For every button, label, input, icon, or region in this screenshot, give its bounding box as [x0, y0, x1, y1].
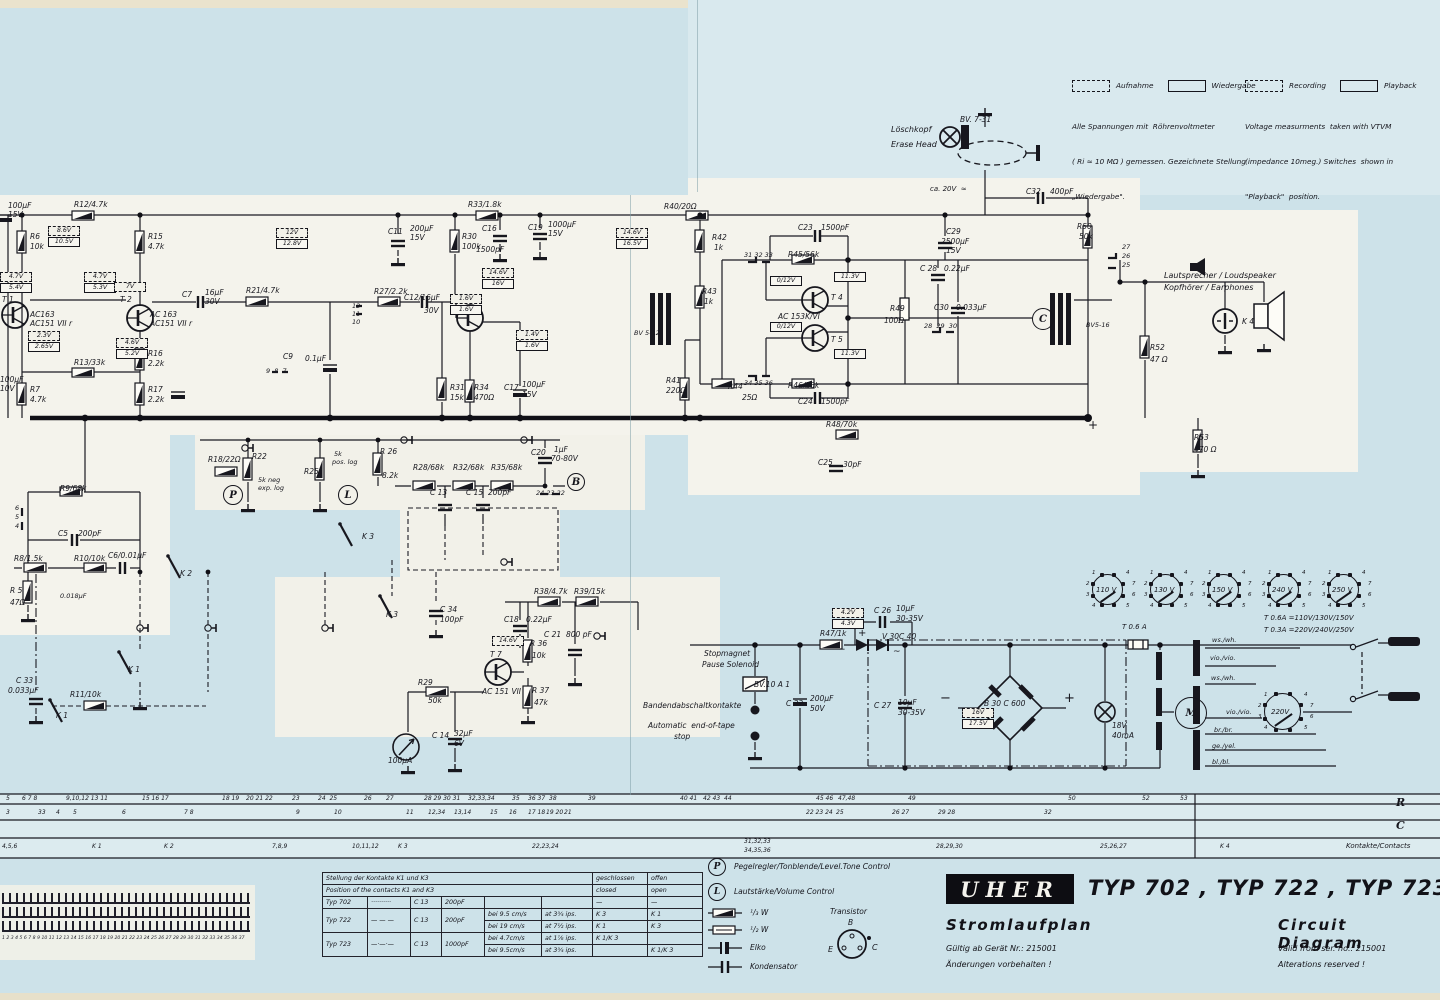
- schematic-label: R35/68k: [491, 464, 522, 472]
- col-closed: closed: [593, 885, 648, 897]
- voltage-recording: 4.7V: [0, 272, 32, 282]
- voltage-box: 11.3V: [834, 272, 866, 282]
- schematic-label: R8/1.5k: [14, 555, 43, 563]
- schematic-label: C23: [798, 224, 813, 232]
- schematic-label: R53: [1194, 434, 1209, 442]
- selector-bump: [1149, 582, 1153, 586]
- schematic-label: 47k: [534, 699, 548, 707]
- voltage-selector: 250 V12344765: [1302, 560, 1386, 620]
- strip-label-c: C: [1396, 819, 1405, 832]
- strip-row-r-item: 9,10,12 13 11: [66, 796, 108, 802]
- schematic-label: R 5: [10, 587, 22, 595]
- strip-row-c-item: 21: [564, 810, 572, 816]
- l-control-icon: L: [708, 883, 726, 901]
- strip-row-r-item: 5: [6, 796, 10, 802]
- schematic-label: K 3: [386, 611, 398, 619]
- circle-mark-m: M: [1175, 697, 1207, 729]
- cell-closed: K 1: [593, 921, 648, 933]
- valid-de: Gültig ab Gerät Nr.: 215001: [946, 944, 1057, 953]
- schematic-label: R48/70k: [826, 421, 857, 429]
- cell-cap: C 13: [411, 897, 442, 909]
- strip-row-c-item: 3: [6, 810, 10, 816]
- schematic-label: R15: [148, 233, 163, 241]
- strip-row-r-item: 49: [908, 796, 916, 802]
- selector-bump: [1348, 603, 1352, 607]
- strip-row-r-item: 24 25: [318, 796, 337, 802]
- col-open: open: [648, 885, 703, 897]
- fuse-note-2: T 0.3A =220V/240V/250V: [1264, 627, 1354, 635]
- schematic-scan-page: Aufnahme Wiedergabe Alle Spannungen mit …: [0, 0, 1440, 1000]
- schematic-label: 200pF: [78, 530, 101, 538]
- strip-row-k-item: 28,29,30: [936, 844, 963, 850]
- cell-value: 200pF: [442, 897, 485, 909]
- l-control-label: Lautstärke/Volume Control: [734, 888, 834, 896]
- selector-bump: [1267, 594, 1271, 598]
- schematic-label: +: [1064, 692, 1075, 706]
- selector-bump: [1149, 594, 1153, 598]
- schematic-label: C19: [528, 224, 543, 232]
- transistor-t1: [2, 302, 28, 328]
- schematic-label: 10k: [30, 243, 44, 251]
- selector-pin: 6: [1310, 715, 1314, 721]
- schematic-label: R41: [666, 377, 681, 385]
- svg-text:E: E: [828, 945, 834, 954]
- transistor-pinout-icon: E C: [822, 926, 882, 966]
- cell-speed-de: bei 9.5cm/s: [485, 945, 542, 957]
- cell-speed-en: at 3¾ ips.: [542, 945, 593, 957]
- selector-bump: [1091, 582, 1095, 586]
- half-watt-label: ¹/₂ W: [750, 926, 768, 934]
- schematic-label: R12/4.7k: [74, 201, 108, 209]
- schematic-label: 9 8 7: [266, 368, 287, 375]
- schematic-label: R7: [30, 386, 40, 394]
- voltage-recording: 8.6V: [48, 226, 80, 236]
- strip-row-c-item: 32: [1044, 810, 1052, 816]
- cell-speed-en: at 1⅞ ips.: [542, 933, 593, 945]
- schematic-label: 31 32 33: [744, 252, 773, 259]
- schematic-label: AC163: [30, 311, 55, 319]
- cell-linestyle: ··········: [368, 897, 411, 909]
- schematic-label: bl./bl.: [1212, 759, 1230, 766]
- selector-bump: [1348, 573, 1352, 577]
- cell-model: Typ 702: [323, 897, 368, 909]
- title-block: UHER TYP 702 , TYP 722 , TYP 723 Stromla…: [938, 868, 1438, 986]
- voltage-playback: 2.65V: [28, 342, 60, 352]
- schematic-label: C 13: [430, 489, 447, 497]
- strip-row-r-item: 23: [292, 796, 300, 802]
- resistor-third-watt-icon: [708, 908, 742, 918]
- voltage-recording: 2.3V: [28, 331, 60, 341]
- schematic-label: AC 151 VII: [482, 688, 521, 696]
- voltage-recording: 16V: [962, 708, 994, 718]
- voltage-playback: 12.8V: [276, 239, 308, 249]
- strip-row-c-item: 6: [122, 810, 126, 816]
- schematic-label: 100µF: [522, 381, 545, 389]
- voltage-box: 4.6V5.2V: [116, 338, 148, 359]
- schematic-label: 30-35V: [898, 709, 925, 717]
- selector-pin: 5: [1304, 726, 1308, 732]
- schematic-label: 0.22µF: [526, 616, 552, 624]
- speaker-symbol: [1254, 292, 1284, 340]
- schematic-label: 10: [352, 319, 360, 326]
- strip-row-c-item: 29 28: [938, 810, 955, 816]
- schematic-label: 30V: [205, 298, 220, 306]
- schematic-label: R44: [728, 383, 743, 391]
- strip-row-k-item: 7,8,9: [272, 844, 287, 850]
- schematic-label: C 15: [466, 489, 483, 497]
- schematic-label: 0.22µF: [944, 265, 970, 273]
- switch-k3b: [338, 522, 352, 546]
- schematic-label: C 14: [432, 732, 449, 740]
- voltage-playback: 11.3V: [834, 272, 866, 282]
- schematic-label: C16: [482, 225, 497, 233]
- voltage-box: 14.6V16.5V: [616, 228, 648, 249]
- schematic-label: BV 5-12: [634, 330, 660, 337]
- schematic-label: 24 23 22: [536, 490, 565, 497]
- schematic-label: R 36: [530, 640, 547, 648]
- schematic-label: br./br.: [1214, 727, 1233, 734]
- schematic-label: Lautsprecher / Loudspeaker: [1164, 272, 1276, 281]
- schematic-label: 15k: [450, 394, 464, 402]
- third-watt-label: ¹/₃ W: [750, 909, 768, 917]
- schematic-label: 50k: [428, 697, 442, 705]
- selector-pin: 2: [1202, 582, 1206, 588]
- strip-row-c-item: 7 8: [184, 810, 194, 816]
- voltage-playback: 5.4V: [0, 283, 32, 293]
- schematic-label: 5: [15, 514, 19, 521]
- schematic-label: T 7: [490, 651, 502, 659]
- cell-closed: [593, 945, 648, 957]
- schematic-label: R16: [148, 350, 163, 358]
- circle-mark-p: P: [223, 485, 243, 505]
- selector-bump: [1237, 582, 1241, 586]
- schematic-label: R33/1.8k: [468, 201, 502, 209]
- voltage-playback: 1.6V: [450, 305, 482, 315]
- selector-bump: [1288, 573, 1292, 577]
- col-geschlossen: geschlossen: [593, 873, 648, 885]
- schematic-label: 25Ω: [742, 394, 757, 402]
- schematic-label: 34 35 36: [744, 380, 773, 387]
- selector-bump: [1274, 692, 1278, 696]
- strip-row-r-item: 32,33,34: [468, 796, 495, 802]
- schematic-label: C 27: [874, 702, 891, 710]
- schematic-label: 1500pF: [821, 224, 849, 232]
- selector-pin: 1: [1328, 571, 1332, 577]
- selector-bump: [1336, 573, 1340, 577]
- selector-bump: [1091, 594, 1095, 598]
- voltage-recording: 4.2V: [832, 608, 864, 618]
- circle-mark-l: L: [338, 485, 358, 505]
- cell-speed-de: bei 4.7cm/s: [485, 933, 542, 945]
- selector-bump: [1297, 582, 1301, 586]
- voltage-box: 0/12V: [770, 276, 802, 286]
- schematic-label: +: [1088, 419, 1098, 432]
- selector-bump: [1299, 717, 1303, 721]
- schematic-label: R38/4.7k: [534, 588, 568, 596]
- schematic-label: 10k: [532, 652, 546, 660]
- schematic-label: 4.7k: [30, 396, 46, 404]
- voltage-box: 1.6V1.6V: [450, 294, 482, 315]
- p-control-icon: P: [708, 858, 726, 876]
- schematic-label: ~: [893, 648, 901, 658]
- voltage-recording: 4.7V: [84, 272, 116, 282]
- comb-numbers: 1 2 3 4 5 6 7 8 9 10 11 12 13 14 15 16 1…: [2, 936, 252, 942]
- cell-speed-de: [485, 897, 542, 909]
- voltage-box: 8.6V10.5V: [48, 226, 80, 247]
- selector-pin: 3: [1086, 593, 1090, 599]
- selector-pin: 4: [1304, 693, 1308, 699]
- strip-label-r: R: [1396, 796, 1405, 809]
- voltage-recording: 14.6V: [482, 268, 514, 278]
- voltage-recording: 14.6V: [616, 228, 648, 238]
- schematic-label: T 1: [2, 296, 14, 304]
- schematic-label: 200µF: [810, 695, 833, 703]
- schematic-label: 220Ω: [666, 387, 686, 395]
- selector-bump: [1288, 603, 1292, 607]
- schematic-label: 70-80V: [551, 455, 578, 463]
- selector-bump: [1237, 594, 1241, 598]
- table-title-de: Stellung der Kontakte K1 und K3: [323, 873, 593, 885]
- schematic-label: R28/68k: [413, 464, 444, 472]
- selector-pin: 7: [1310, 704, 1314, 710]
- strip-row-k-item: 31,32,33: [744, 839, 771, 845]
- selector-pin: 4: [1208, 604, 1212, 610]
- schematic-label: C11: [388, 228, 403, 236]
- strip-row-k-item: 34,35,36: [744, 848, 771, 854]
- schematic-label: +: [858, 629, 866, 640]
- schematic-label: C17: [504, 384, 519, 392]
- legend-note-en: Voltage measurments taken with VTVM (imp…: [1245, 98, 1417, 226]
- schematic-label: V 30C 40: [882, 633, 916, 641]
- schematic-label: 100pF: [440, 616, 463, 624]
- selector-pin: 2: [1322, 582, 1326, 588]
- selector-bump: [1299, 703, 1303, 707]
- cell-closed: —: [593, 897, 648, 909]
- schematic-label: 50V: [810, 705, 825, 713]
- voltage-recording: 1.6V: [450, 294, 482, 304]
- selector-pin: 4: [1362, 571, 1366, 577]
- schematic-label: 15V: [522, 391, 537, 399]
- schematic-label: 16µF: [205, 289, 224, 297]
- headphone-jack-k4: [1213, 309, 1237, 333]
- selector-pin: 1: [1264, 693, 1268, 699]
- voltage-box: 11.3V: [834, 349, 866, 359]
- schematic-label: R52: [1150, 344, 1165, 352]
- schematic-label: R29: [418, 679, 433, 687]
- selector-bump: [1207, 594, 1211, 598]
- selector-pin: 4: [1264, 726, 1268, 732]
- schematic-label: K 1: [128, 666, 140, 674]
- schematic-label: K 2: [180, 570, 192, 578]
- elko-label: Elko: [750, 944, 766, 952]
- strip-row-c-item: 5: [73, 810, 77, 816]
- voltage-playback: 4.3V: [832, 619, 864, 629]
- schematic-label: 10V: [0, 385, 15, 393]
- schematic-label: C24: [798, 398, 813, 406]
- contact-comb-row: [2, 893, 250, 904]
- cell-open: K 1/K 3: [648, 945, 703, 957]
- schematic-label: C12/16µF: [404, 294, 440, 302]
- strip-row-r-item: 42 43: [703, 796, 720, 802]
- schematic-label: 1000µF: [548, 221, 576, 229]
- schematic-label: C 22: [786, 700, 803, 708]
- schematic-label: 12: [352, 303, 360, 310]
- strip-row-c-item: 25: [836, 810, 844, 816]
- voltage-recording: 4.6V: [116, 338, 148, 348]
- schematic-label: 4: [15, 523, 19, 530]
- schematic-label: Stopmagnet: [704, 650, 750, 658]
- strip-row-r-item: 39: [588, 796, 596, 802]
- schematic-label: R 26: [380, 448, 397, 456]
- schematic-label: R25: [304, 468, 319, 476]
- schematic-label: T 0.6 A: [1122, 624, 1147, 632]
- title-de: Stromlaufplan: [946, 916, 1092, 934]
- schematic-label: 200pF: [488, 489, 511, 497]
- selector-pin: 1: [1208, 571, 1212, 577]
- schematic-label: 2500µF: [941, 238, 969, 246]
- schematic-label: 26: [1122, 253, 1130, 260]
- schematic-label: K 1: [56, 712, 68, 720]
- schematic-label: R43: [702, 288, 717, 296]
- schematic-label: 47Ω: [10, 599, 25, 607]
- schematic-label: 30V: [424, 307, 439, 315]
- schematic-label: R40/20Ω: [664, 203, 697, 211]
- schematic-label: AC 153K/VI: [778, 313, 820, 321]
- valid-en: Valid from ser. no.: 215001: [1278, 944, 1386, 953]
- solid-box-icon: [1340, 80, 1378, 92]
- selector-pin: 2: [1144, 582, 1148, 588]
- schematic-label: 400pF: [1050, 188, 1073, 196]
- cell-speed-en: [542, 897, 593, 909]
- strip-row-k-item: 10,11,12: [352, 844, 379, 850]
- selector-bump: [1170, 573, 1174, 577]
- selector-pin: 4: [1150, 604, 1154, 610]
- selector-bump: [1158, 603, 1162, 607]
- schematic-label: ws./wh.: [1211, 675, 1235, 682]
- schematic-label: 2.2k: [148, 360, 164, 368]
- schematic-label: 5k neg: [258, 477, 280, 484]
- schematic-label: R39/15k: [574, 588, 605, 596]
- legend-german: Aufnahme Wiedergabe Alle Spannungen mit …: [1072, 80, 1256, 226]
- strip-row-k-item: 22,23,24: [532, 844, 559, 850]
- transistor-t7: [485, 659, 511, 685]
- schematic-label: T 5: [831, 336, 843, 344]
- voltage-recording: 1.4V: [516, 330, 548, 340]
- strip-row-c-item: 4: [56, 810, 60, 816]
- selector-bump: [1357, 594, 1361, 598]
- schematic-label: 0.033µF: [956, 304, 987, 312]
- schematic-label: 0.033µF: [8, 687, 39, 695]
- cell-closed: K 1/K 3: [593, 933, 648, 945]
- selector-pin: 3: [1202, 593, 1206, 599]
- selector-bump: [1100, 573, 1104, 577]
- legend-note-de: Alle Spannungen mit Röhrenvoltmeter ( Ri…: [1072, 98, 1256, 226]
- strip-row-r-item: 44: [724, 796, 732, 802]
- transistor-legend: Transistor B E C: [822, 908, 882, 968]
- lamp-18v: [1095, 702, 1115, 722]
- voltage-recording: 7V: [114, 282, 146, 292]
- selector-bump: [1267, 582, 1271, 586]
- voltage-playback: 16V: [482, 279, 514, 289]
- schematic-label: C30: [934, 304, 949, 312]
- schematic-label: 0.1µF: [305, 355, 326, 363]
- voltage-playback: 0/12V: [770, 276, 802, 286]
- cell-model: Typ 723: [323, 933, 368, 957]
- schematic-label: 5k: [334, 451, 342, 458]
- schematic-label: C 34: [440, 606, 457, 614]
- strip-row-c-item: 33: [38, 810, 46, 816]
- schematic-label: vio./vio.: [1210, 655, 1236, 662]
- selector-pin: 4: [1268, 604, 1272, 610]
- selector-bump: [1274, 728, 1278, 732]
- model-numbers: TYP 702 , TYP 722 , TYP 723: [1088, 876, 1440, 900]
- schematic-label: K 3: [362, 533, 374, 541]
- selector-pin: 3: [1258, 715, 1262, 721]
- strip-row-r-item: 20 21 22: [246, 796, 273, 802]
- strip-row-c-item: 11: [406, 810, 414, 816]
- schematic-label: −: [838, 646, 846, 656]
- schematic-label: R18/22Ω: [208, 456, 241, 464]
- voltage-recording: 14.6V: [492, 636, 524, 646]
- strip-row-r-item: 38: [549, 796, 557, 802]
- elko-icon: [708, 942, 742, 954]
- selector-bump: [1228, 603, 1232, 607]
- strip-row-r-item: 52: [1142, 796, 1150, 802]
- schematic-label: C29: [946, 228, 961, 236]
- voltage-box: 4.2V4.3V: [832, 608, 864, 629]
- dashed-box-icon: [1245, 80, 1283, 92]
- schematic-label: K 4: [1242, 318, 1254, 326]
- selector-pin: 2: [1262, 582, 1266, 588]
- cell-speed-en: at 3¾ ips.: [542, 909, 593, 921]
- schematic-label: 800 pF: [566, 631, 592, 639]
- voltage-box: 4.7V5.3V: [84, 272, 116, 293]
- legend-english: Recording Playback Voltage measurments t…: [1245, 80, 1417, 226]
- schematic-label: R32/68k: [453, 464, 484, 472]
- switch-k2: [166, 554, 180, 578]
- fold-crease-mid: [630, 195, 631, 795]
- fuse-t06a: [1128, 640, 1148, 649]
- mains-switch: [1350, 637, 1420, 702]
- selector-pin: 2: [1086, 582, 1090, 588]
- schematic-label: 6: [15, 505, 19, 512]
- schematic-label: 30pF: [843, 461, 862, 469]
- schematic-label: Löschkopf: [891, 126, 931, 135]
- voltage-recording: 12V: [276, 228, 308, 238]
- schematic-label: R31: [450, 384, 465, 392]
- col-offen: offen: [648, 873, 703, 885]
- selector-bump: [1336, 603, 1340, 607]
- schematic-label: Pause Solenoid: [702, 661, 759, 669]
- schematic-label: C 26: [874, 607, 891, 615]
- selector-pin: 1: [1092, 571, 1096, 577]
- selector-bump: [1288, 728, 1292, 732]
- contacts-table: Stellung der Kontakte K1 und K3geschloss…: [322, 872, 703, 957]
- voltage-playback: 10.5V: [48, 237, 80, 247]
- selector-bump: [1207, 582, 1211, 586]
- strip-row-r-item: 47,48: [838, 796, 855, 802]
- strip-row-c-item: 12,34: [428, 810, 445, 816]
- schematic-label: AC 163: [150, 311, 177, 319]
- strip-row-c-item: 15: [490, 810, 498, 816]
- schematic-label: C 21: [544, 631, 561, 639]
- strip-row-c-item: 22 23 24: [806, 810, 833, 816]
- schematic-label: BV5-16: [1086, 322, 1110, 329]
- schematic-label: C25: [818, 459, 833, 467]
- schematic-label: C7: [182, 291, 192, 299]
- strip-row-k-item: 4,5,6: [2, 844, 17, 850]
- selector-bump: [1112, 603, 1116, 607]
